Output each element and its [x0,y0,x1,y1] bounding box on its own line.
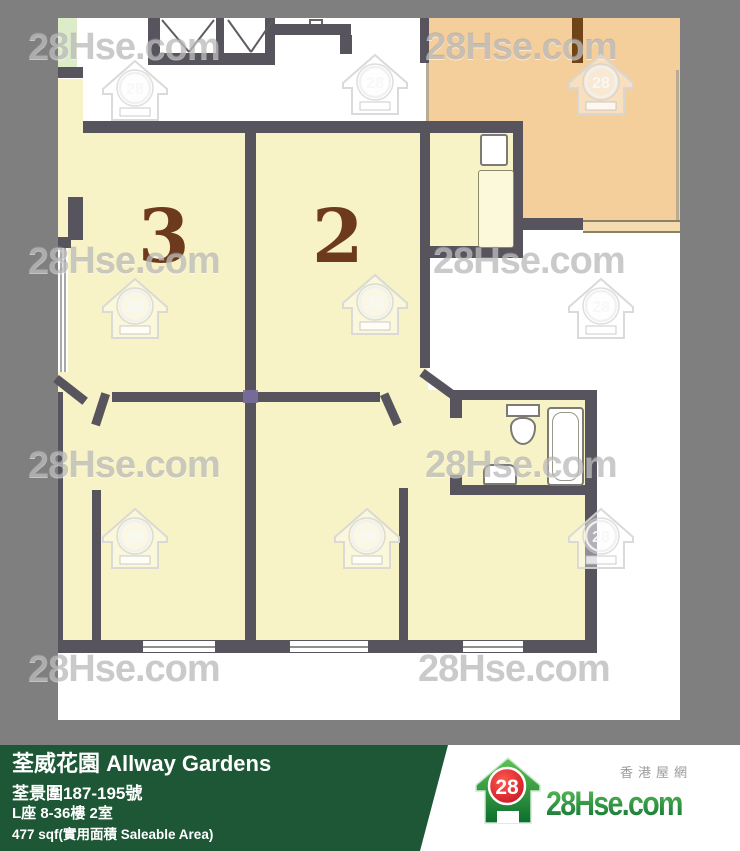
room-3-number: 3 [138,200,190,274]
neighbor-boundary-line [426,63,429,121]
wall-bay-top-stub [58,237,71,248]
wall-junction-mark [243,390,258,403]
28hse-tagline: 香港屋網 [620,762,692,781]
wall-rooms-top [83,121,523,133]
neighbor-window-band [583,220,680,233]
wall-bathroom-top [450,390,595,400]
wall-lower-2 [399,488,408,642]
wall-lower-1 [92,490,101,642]
estate-unit: L座 8-36樓 2室 [12,802,113,823]
toilet-tank [506,404,540,417]
kitchen-counter [478,170,514,248]
floorplan-page: 3 2 28Hse.com28Hse.com28Hse.com28Hse.com… [0,0,740,851]
wall-bathroom-bottom [450,485,595,495]
wall-green-strip-stub [58,67,83,78]
logo-house-door [497,811,519,823]
neighbor-right-line [676,70,679,220]
wall-kitchen-right [513,131,523,248]
wall-room-divider [245,131,256,642]
wall-nook-stub [68,197,83,240]
wall-neighbor-bottom [515,218,583,230]
kitchen-sink [480,134,508,166]
banner: 荃威花園 Allway Gardens 荃景圍187-195號 L座 8-36樓… [0,745,740,851]
bay-window [58,248,68,372]
28hse-logo-icon: 28 [472,755,544,827]
logo-badge-number: 28 [495,776,519,799]
wall-bathroom-left-upper [450,398,462,418]
window-bottom-1 [143,641,215,652]
window-bottom-2 [290,641,368,652]
room-3-area [58,79,246,640]
window-bottom-3 [463,641,523,652]
wash-basin [483,464,517,485]
neighbor-door-band [572,18,583,63]
wall-right-exterior [585,390,597,653]
green-planter-strip [58,18,77,67]
estate-title: 荃威花園 Allway Gardens [12,746,271,778]
estate-area: 477 sqf(實用面積 Saleable Area) [12,823,213,843]
neighbor-unit-lower [523,122,680,221]
estate-address: 荃景圍187-195號 [12,779,142,804]
neighbor-unit-upper [428,18,680,122]
wall-left-lower [58,392,63,642]
28hse-brand-text: 28Hse.com [546,785,682,824]
lightwell [428,258,587,390]
wall-lobby-top [273,24,351,35]
bathtub-inner [552,412,579,481]
room-2-number: 2 [312,200,364,274]
wall-neighbor-left-stub [420,18,429,63]
elevator-symbol [148,18,275,65]
wall-lobby-return [340,35,352,54]
